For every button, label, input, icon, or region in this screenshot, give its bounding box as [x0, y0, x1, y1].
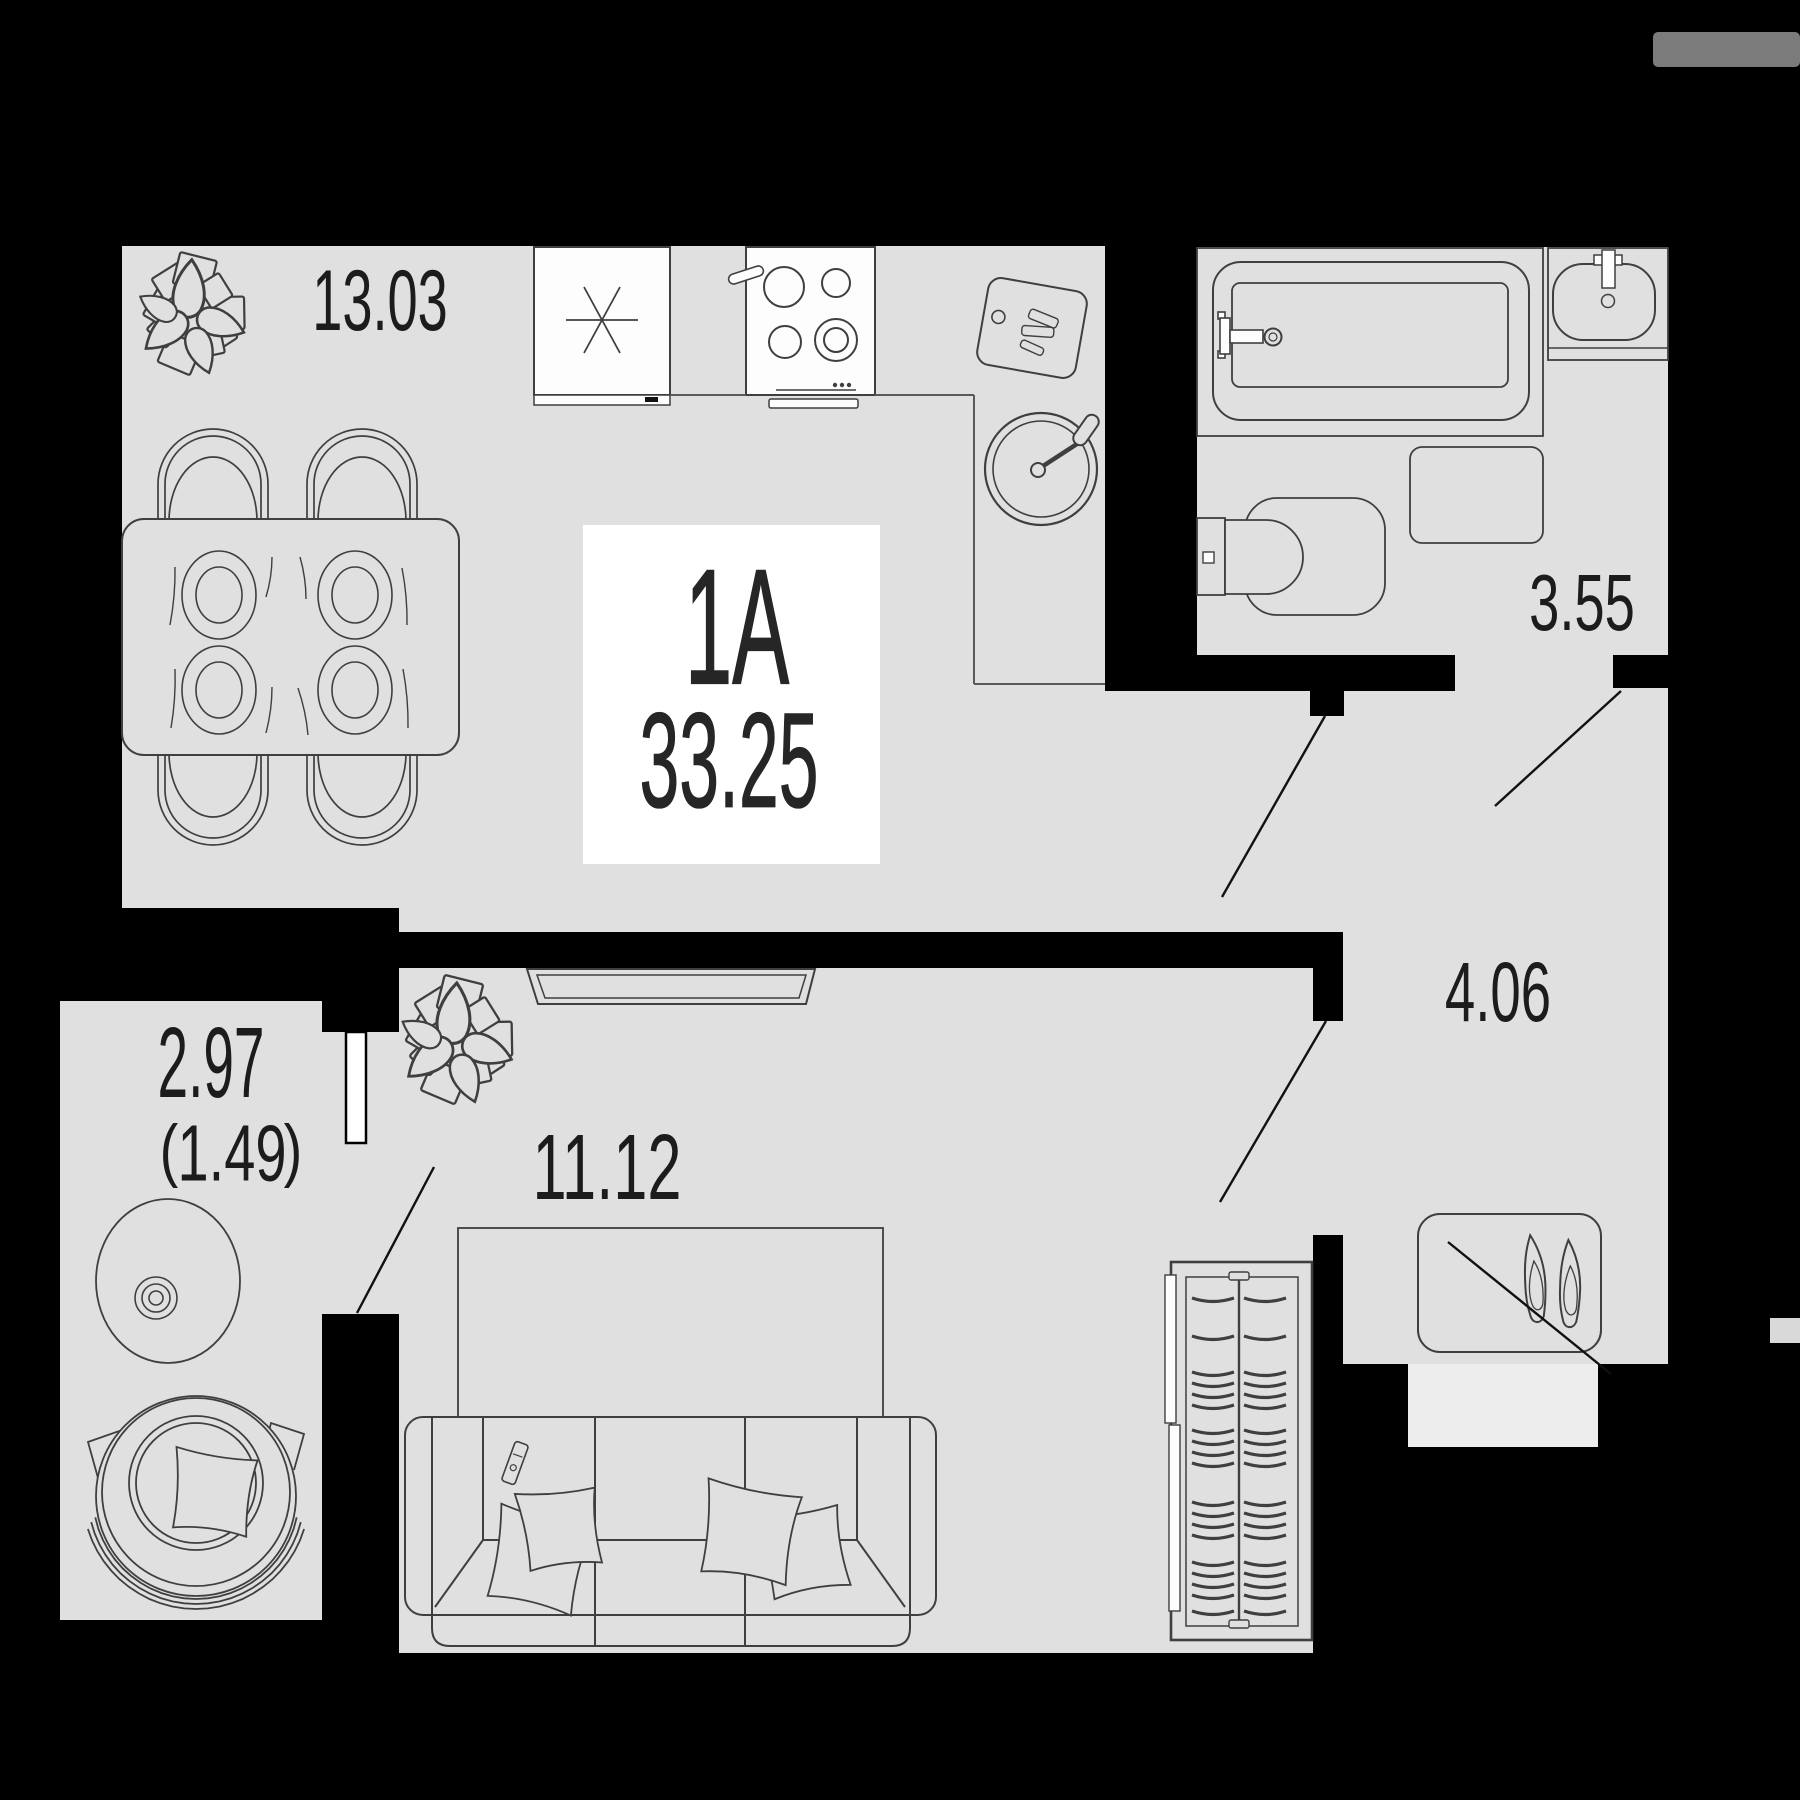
svg-text:(: (	[160, 1112, 179, 1189]
svg-text:33.25: 33.25	[639, 684, 818, 835]
svg-text:1.49: 1.49	[178, 1108, 287, 1198]
svg-text:3.55: 3.55	[1529, 558, 1635, 647]
svg-text:11.12: 11.12	[532, 1115, 681, 1219]
svg-text:2.97: 2.97	[157, 1008, 264, 1120]
svg-text:): )	[284, 1112, 303, 1189]
svg-text:4.06: 4.06	[1445, 946, 1551, 1040]
svg-text:13.03: 13.03	[312, 253, 448, 349]
